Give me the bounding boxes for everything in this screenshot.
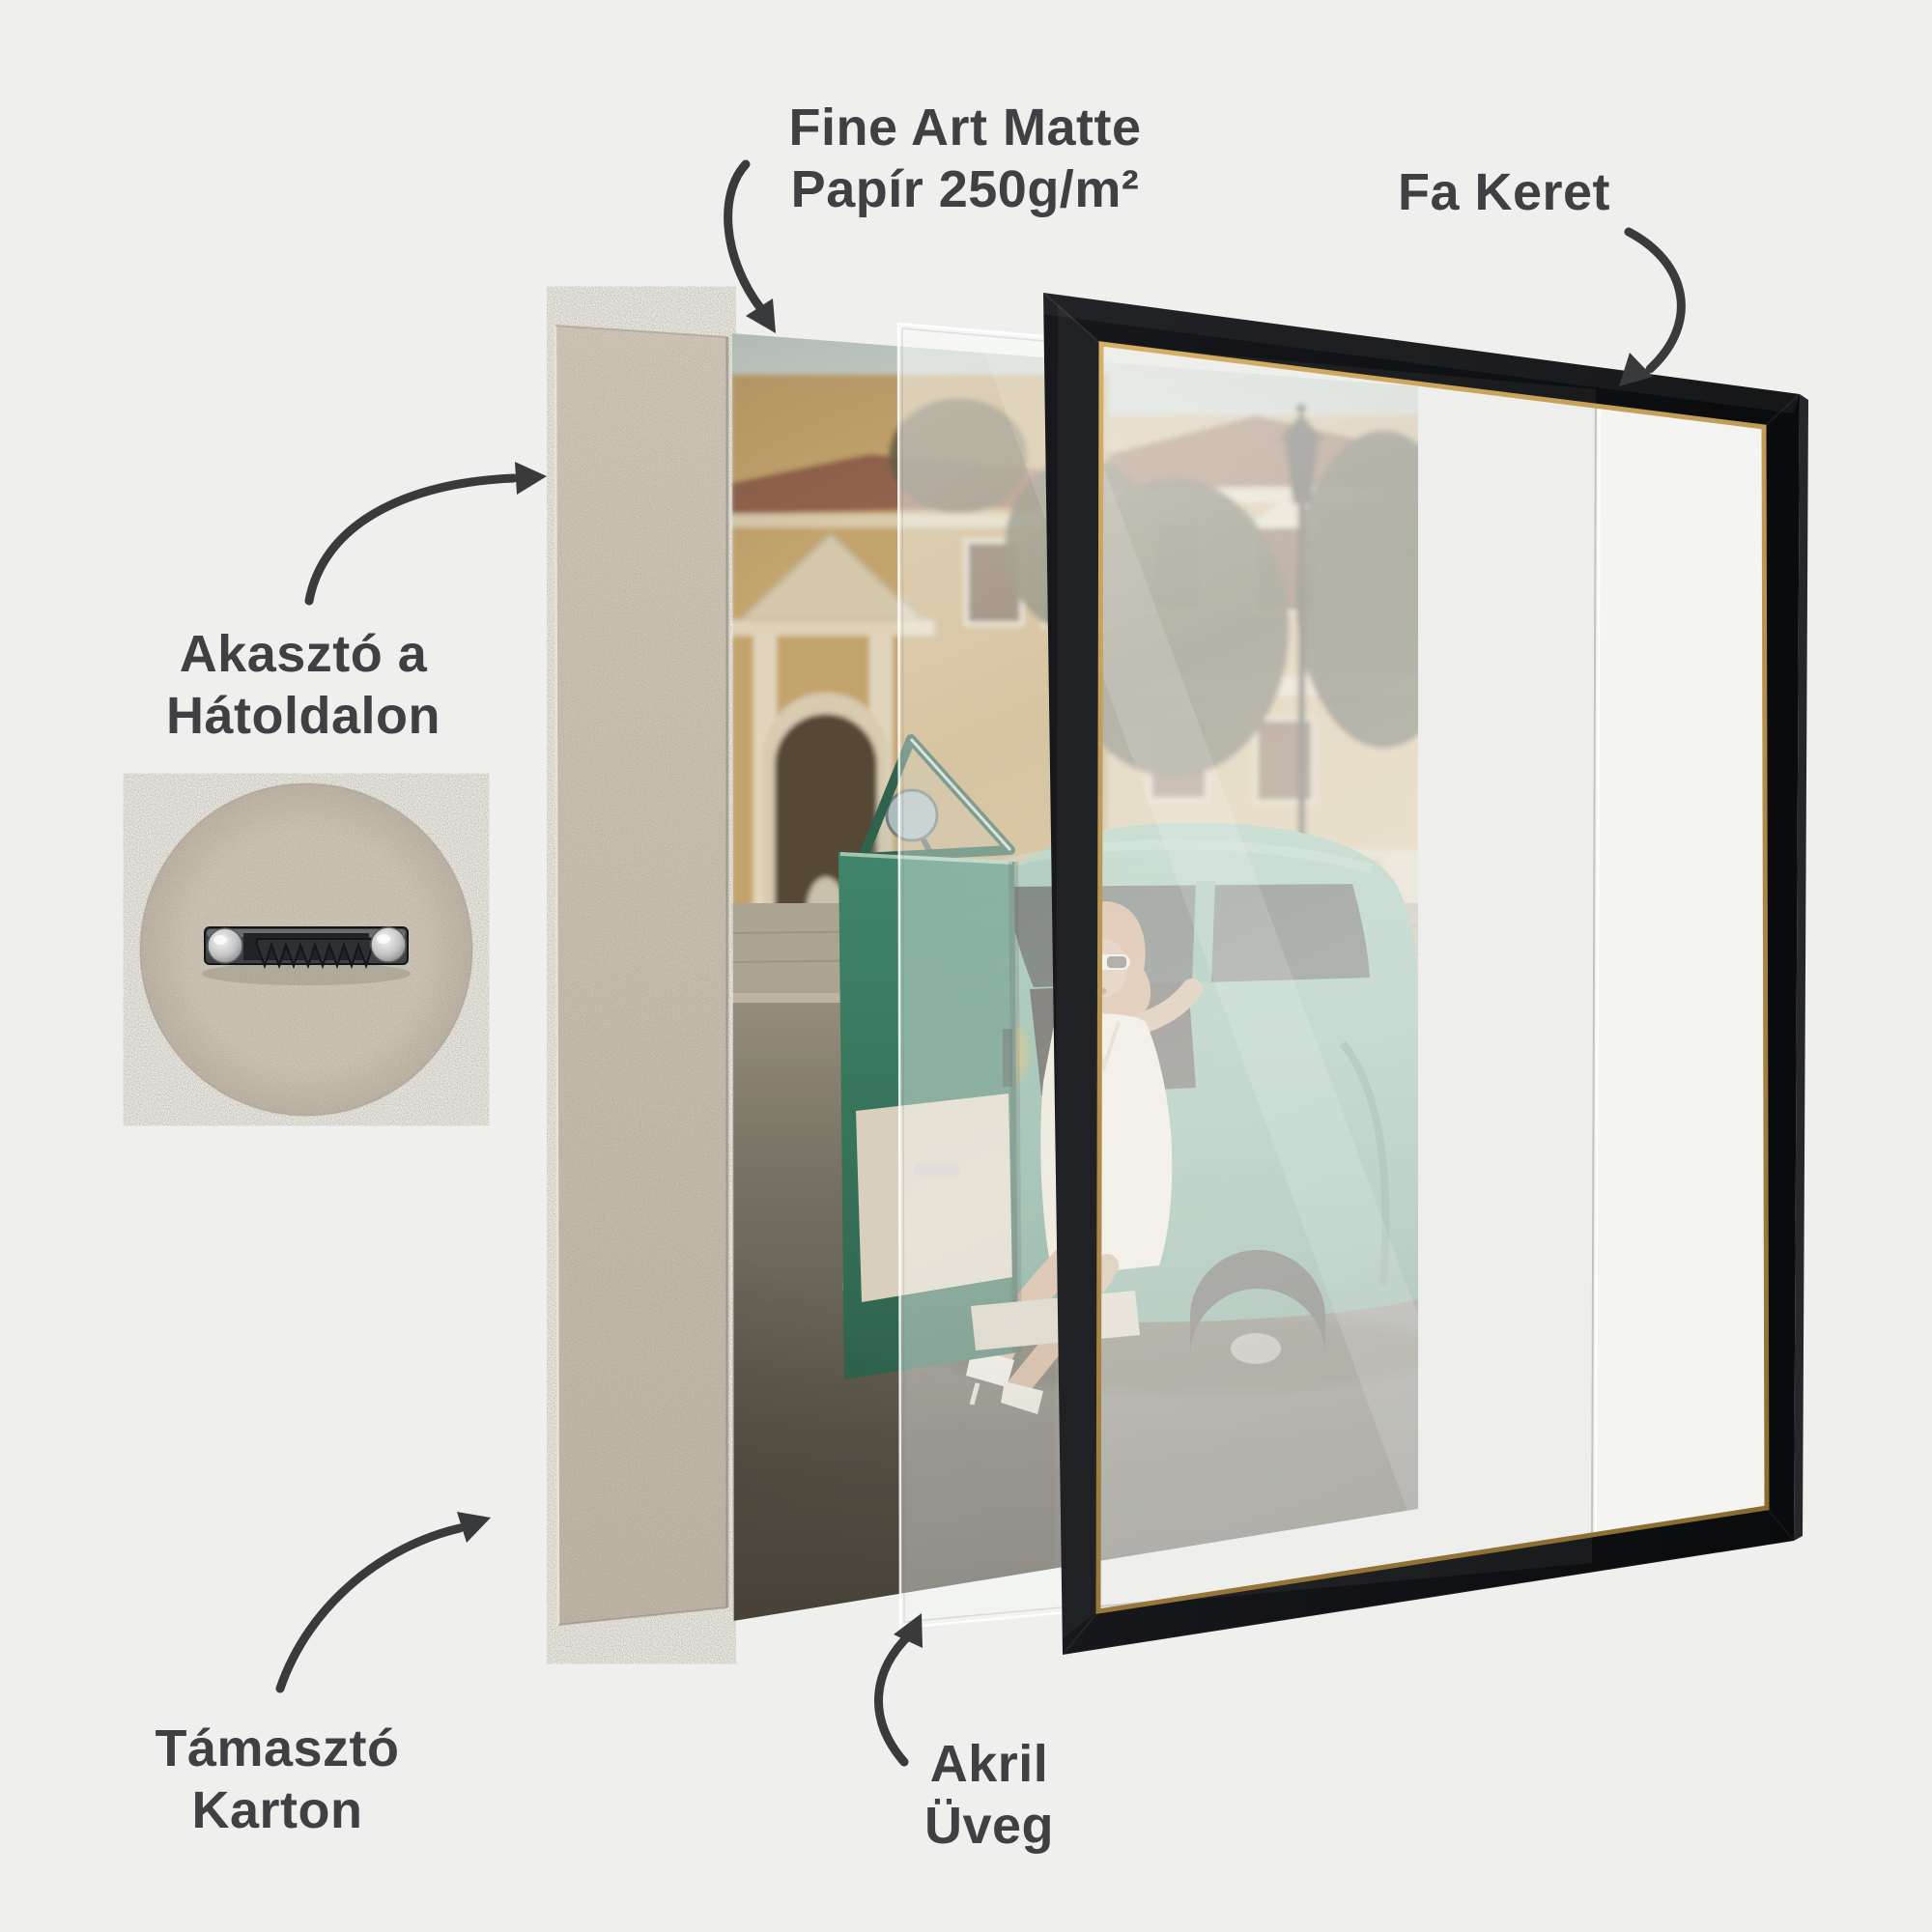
label-acrylic: Akril Üveg xyxy=(844,1733,1134,1857)
label-hanger-line1: Akasztó a xyxy=(110,623,497,685)
arrow-to-hanger-icon xyxy=(309,462,547,601)
hanger-detail-circle xyxy=(140,783,472,1116)
label-frame: Fa Keret xyxy=(1359,161,1649,223)
label-backing: Támasztó Karton xyxy=(84,1718,470,1841)
backing-board-layer xyxy=(555,326,727,1625)
label-paper: Fine Art Matte Papír 250g/m² xyxy=(714,97,1216,220)
label-hanger-line2: Hátoldalon xyxy=(110,685,497,747)
label-paper-line2: Papír 250g/m² xyxy=(714,158,1216,220)
label-backing-line2: Karton xyxy=(84,1779,470,1841)
label-hanger: Akasztó a Hátoldalon xyxy=(110,623,497,747)
arrow-to-backing-icon xyxy=(280,1512,491,1689)
label-acrylic-line2: Üveg xyxy=(844,1795,1134,1857)
label-acrylic-line1: Akril xyxy=(844,1733,1134,1795)
exploded-frame-diagram: Fine Art Matte Papír 250g/m² Fa Keret Ak… xyxy=(0,0,1932,1932)
hanger-screw-left xyxy=(208,928,242,963)
label-frame-line1: Fa Keret xyxy=(1359,161,1649,223)
label-backing-line1: Támasztó xyxy=(84,1718,470,1779)
label-paper-line1: Fine Art Matte xyxy=(714,97,1216,158)
exploded-frame-illustration xyxy=(0,0,1932,1932)
hanger-screw-right xyxy=(371,927,406,962)
sawtooth-hanger xyxy=(202,927,411,985)
arrow-to-frame-icon xyxy=(1619,232,1681,386)
